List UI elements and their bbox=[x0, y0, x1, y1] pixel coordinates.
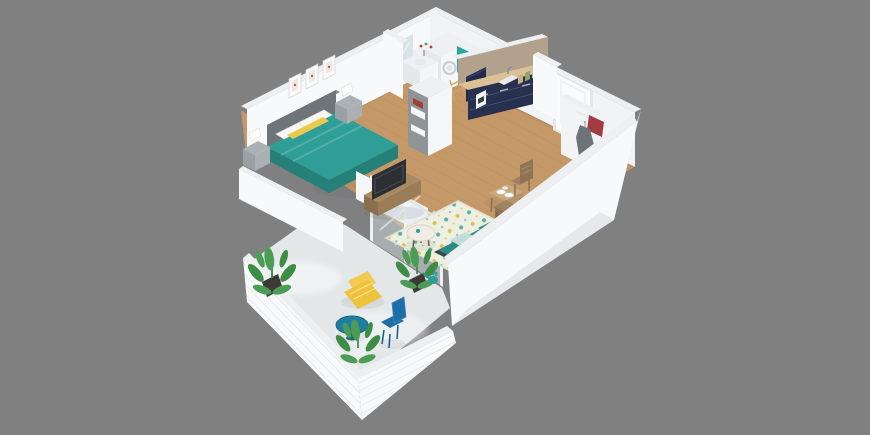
table-decor bbox=[416, 229, 420, 233]
hall-cabinet bbox=[408, 76, 452, 156]
fridge-side bbox=[428, 86, 452, 156]
toiletry-red bbox=[430, 46, 433, 49]
plate bbox=[497, 190, 506, 194]
floorplan-render bbox=[0, 0, 870, 435]
bowl bbox=[502, 186, 508, 189]
open-shelves bbox=[408, 88, 428, 156]
toiletry-red bbox=[420, 45, 423, 48]
toiletry-green bbox=[425, 43, 428, 46]
plate bbox=[505, 193, 514, 197]
round-side-table bbox=[406, 225, 436, 251]
floorplan-scene bbox=[0, 0, 870, 435]
